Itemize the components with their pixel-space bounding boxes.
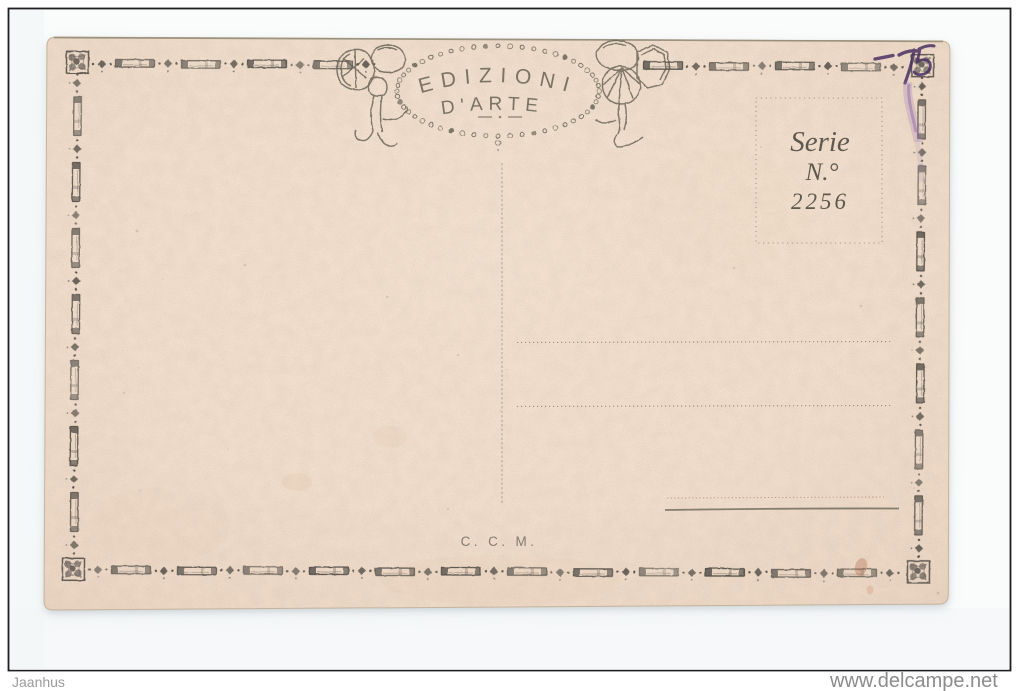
svg-text:www.delcampe.net: www.delcampe.net: [829, 670, 998, 691]
svg-text:N.°: N.°: [805, 159, 839, 186]
svg-text:Jaanhus: Jaanhus: [12, 674, 65, 690]
svg-text:2256: 2256: [791, 189, 849, 214]
svg-text:C. C. M.: C. C. M.: [461, 534, 538, 549]
svg-text:Serie: Serie: [790, 126, 850, 158]
